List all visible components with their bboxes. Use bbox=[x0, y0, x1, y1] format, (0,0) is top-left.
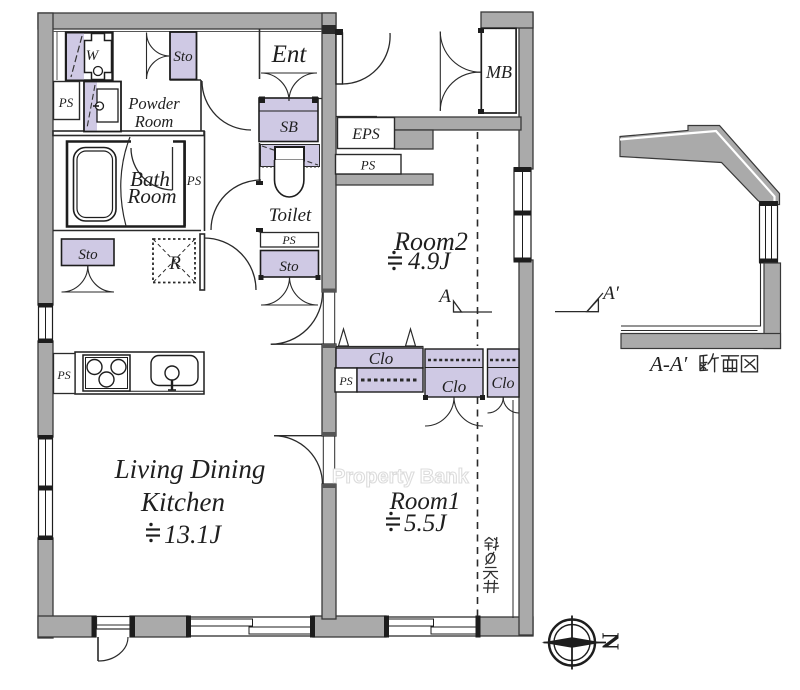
svg-text:PS: PS bbox=[186, 173, 202, 188]
svg-text:Clo: Clo bbox=[491, 375, 514, 392]
svg-text:Toilet: Toilet bbox=[269, 205, 312, 226]
svg-text:PS: PS bbox=[360, 158, 376, 173]
svg-text:Living Dining: Living Dining bbox=[114, 454, 266, 484]
svg-text:Kitchen: Kitchen bbox=[140, 487, 225, 517]
svg-text:Clo: Clo bbox=[442, 377, 467, 396]
svg-text:MB: MB bbox=[485, 62, 512, 82]
svg-text:4.9J: 4.9J bbox=[408, 248, 452, 275]
svg-text:Powder: Powder bbox=[127, 94, 180, 113]
svg-text:SB: SB bbox=[280, 119, 298, 136]
svg-text:Room: Room bbox=[134, 112, 174, 131]
svg-text:Sto: Sto bbox=[78, 247, 98, 263]
svg-text:PS: PS bbox=[338, 374, 352, 388]
svg-text:Ent: Ent bbox=[271, 41, 308, 68]
svg-text:Clo: Clo bbox=[369, 349, 394, 368]
svg-text:A′: A′ bbox=[601, 283, 620, 304]
svg-text:N: N bbox=[597, 633, 623, 651]
svg-text:Sto: Sto bbox=[279, 259, 299, 275]
svg-text:A: A bbox=[437, 286, 451, 307]
svg-text:PS: PS bbox=[56, 368, 70, 382]
svg-text:EPS: EPS bbox=[351, 126, 380, 143]
svg-text:W: W bbox=[86, 48, 100, 64]
svg-text:PS: PS bbox=[58, 95, 74, 110]
svg-text:PS: PS bbox=[281, 233, 295, 247]
svg-text:R: R bbox=[168, 253, 181, 274]
svg-text:Room: Room bbox=[127, 184, 177, 208]
svg-text:Property Bank: Property Bank bbox=[332, 466, 470, 488]
svg-text:A-A′: A-A′ bbox=[648, 352, 688, 376]
svg-text:Sto: Sto bbox=[173, 49, 193, 65]
svg-text:13.1J: 13.1J bbox=[164, 520, 223, 549]
svg-text:5.5J: 5.5J bbox=[404, 510, 448, 537]
